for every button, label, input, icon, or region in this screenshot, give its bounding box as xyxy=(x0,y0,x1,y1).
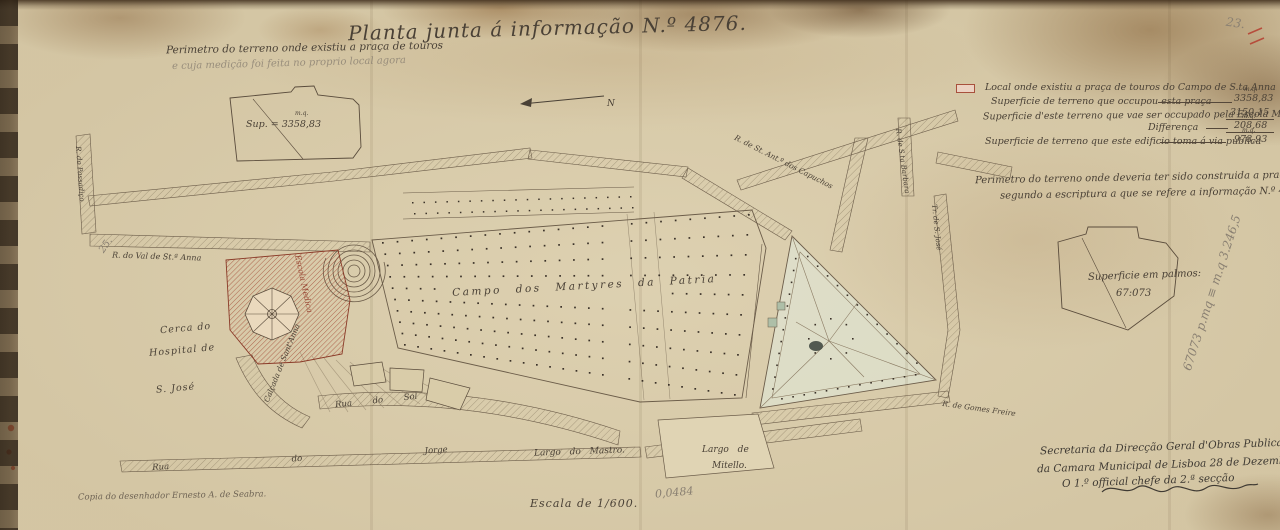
tree-dot xyxy=(733,215,735,217)
tree-dot xyxy=(413,252,415,254)
tree-dot xyxy=(646,222,648,224)
tree-dot xyxy=(446,276,448,278)
tree-dot xyxy=(602,275,604,277)
tree-dot xyxy=(906,353,908,355)
tree-dot xyxy=(416,264,418,266)
tree-dot xyxy=(726,313,728,315)
existing-area-value: Sup. = 3358,83 xyxy=(246,119,321,130)
tree-dot xyxy=(543,230,545,232)
tree-dot xyxy=(483,211,485,213)
tree-dot xyxy=(545,275,547,277)
tree-dot xyxy=(428,251,430,253)
tree-dot xyxy=(471,249,473,251)
tree-dot xyxy=(589,356,591,358)
tree-dot xyxy=(588,323,590,325)
tree-dot xyxy=(544,260,546,262)
tree-dot xyxy=(505,304,507,306)
tree-dot xyxy=(589,372,591,374)
tree-dot xyxy=(410,311,412,313)
tree-dot xyxy=(774,376,776,378)
tree-dot xyxy=(552,209,554,211)
tree-dot xyxy=(546,305,548,307)
tree-dot xyxy=(814,324,816,326)
tree-dot xyxy=(575,354,577,356)
tree-dot xyxy=(468,341,470,343)
tree-dot xyxy=(629,361,631,363)
tree-dot xyxy=(423,202,425,204)
tree-dot xyxy=(530,260,532,262)
tree-dot xyxy=(673,256,675,258)
tree-dot xyxy=(837,285,839,287)
tree-dot xyxy=(562,368,564,370)
tree-dot xyxy=(494,330,496,332)
legend-unit: m.q. xyxy=(1244,86,1257,93)
tree-dot xyxy=(716,255,718,257)
tree-dot xyxy=(710,351,712,353)
tree-dot xyxy=(563,209,565,211)
tree-dot xyxy=(587,259,589,261)
tree-dot xyxy=(430,263,432,265)
tree-dot xyxy=(791,282,793,284)
tree-dot xyxy=(574,307,576,309)
tree-dot xyxy=(632,207,634,209)
tree-dot xyxy=(573,275,575,277)
tree-dot xyxy=(671,311,673,313)
tree-dot xyxy=(642,345,644,347)
tree-dot xyxy=(787,305,789,307)
tree-dot xyxy=(670,329,672,331)
tree-dot xyxy=(548,336,550,338)
campo-field xyxy=(372,210,766,402)
tree-dot xyxy=(399,253,401,255)
tree-dot xyxy=(739,334,741,336)
tree-dot xyxy=(549,351,551,353)
legend-line2-value: 3358,83 xyxy=(1234,93,1273,104)
scale-note: Escala de 1/600. xyxy=(530,497,638,510)
tree-dot xyxy=(596,197,598,199)
tree-dot xyxy=(528,231,530,233)
tree-dot xyxy=(430,348,432,350)
tree-dot xyxy=(560,306,562,308)
tree-dot xyxy=(549,366,551,368)
tree-dot xyxy=(516,261,518,263)
tree-dot xyxy=(506,210,508,212)
tree-dot xyxy=(724,353,726,355)
tree-dot xyxy=(402,333,404,335)
tree-dot xyxy=(694,388,696,390)
tree-dot xyxy=(713,313,715,315)
tree-dot xyxy=(384,253,386,255)
tree-dot xyxy=(587,226,589,228)
tree-dot xyxy=(782,329,784,331)
tree-dot xyxy=(406,288,408,290)
legend-leader xyxy=(1206,128,1228,129)
tree-dot xyxy=(602,357,604,359)
tree-dot xyxy=(479,316,481,318)
tree-dot xyxy=(728,294,730,296)
tree-dot xyxy=(645,239,647,241)
tree-dot xyxy=(515,199,517,201)
existing-area-unit: m.q. xyxy=(295,110,308,117)
tree-dot xyxy=(417,346,419,348)
legend-swatch xyxy=(956,84,975,93)
tree-dot xyxy=(465,315,467,317)
tree-dot xyxy=(826,390,828,392)
tree-dot xyxy=(703,236,705,238)
tree-dot xyxy=(451,314,453,316)
tree-dot xyxy=(602,242,604,244)
tree-dot xyxy=(408,299,410,301)
tree-dot xyxy=(881,380,883,382)
tree-dot xyxy=(521,333,523,335)
tree-dot xyxy=(504,199,506,201)
tree-dot xyxy=(435,201,437,203)
red-corner-ticks xyxy=(1248,28,1264,44)
tree-dot xyxy=(418,276,420,278)
tree-dot xyxy=(655,382,657,384)
tree-dot xyxy=(437,212,439,214)
tree-dot xyxy=(631,240,633,242)
tree-dot xyxy=(473,262,475,264)
tree-dot xyxy=(442,338,444,340)
tree-dot xyxy=(852,338,854,340)
tree-dot xyxy=(414,213,416,215)
tree-dot xyxy=(685,312,687,314)
tree-dot xyxy=(540,210,542,212)
tree-dot xyxy=(413,323,415,325)
tree-dot xyxy=(602,258,604,260)
tree-dot xyxy=(748,214,750,216)
tree-dot xyxy=(392,287,394,289)
tree-dot xyxy=(915,374,917,376)
tree-dot xyxy=(814,352,816,354)
tree-dot xyxy=(492,200,494,202)
tree-dot xyxy=(717,236,719,238)
tree-dot xyxy=(488,275,490,277)
tree-dot xyxy=(656,346,658,348)
tree-dot xyxy=(669,366,671,368)
tree-dot xyxy=(450,301,452,303)
tree-dot xyxy=(631,223,633,225)
tree-dot xyxy=(629,326,631,328)
tree-dot xyxy=(785,317,787,319)
tree-dot xyxy=(397,241,399,243)
tree-dot xyxy=(575,338,577,340)
tree-dot xyxy=(830,318,832,320)
tree-dot xyxy=(572,227,574,229)
legend-leader xyxy=(1158,102,1232,103)
tree-dot xyxy=(789,293,791,295)
tree-dot xyxy=(721,392,723,394)
tree-dot xyxy=(886,333,888,335)
tree-dot xyxy=(711,332,713,334)
tree-dot xyxy=(725,333,727,335)
tree-dot xyxy=(533,305,535,307)
tree-dot xyxy=(529,246,531,248)
label-largo-mitello-1: Largo de xyxy=(702,445,749,455)
tree-dot xyxy=(394,299,396,301)
tree-dot xyxy=(529,210,531,212)
tree-dot xyxy=(731,254,733,256)
tree-dot xyxy=(776,364,778,366)
tree-dot xyxy=(469,200,471,202)
tree-dot xyxy=(575,322,577,324)
tree-dot xyxy=(470,354,472,356)
tree-dot xyxy=(455,236,457,238)
tree-dot xyxy=(434,288,436,290)
tree-dot xyxy=(695,369,697,371)
legend-line4-label: Differença xyxy=(1148,122,1198,133)
tree-dot xyxy=(795,258,797,260)
legend-leader xyxy=(1160,142,1226,143)
tree-dot xyxy=(609,208,611,210)
tree-dot xyxy=(506,318,508,320)
tree-dot xyxy=(482,343,484,345)
tree-dot xyxy=(495,344,497,346)
tree-dot xyxy=(486,248,488,250)
tree-dot xyxy=(382,242,384,244)
tree-dot xyxy=(830,358,832,360)
tree-dot xyxy=(559,260,561,262)
tree-dot xyxy=(399,321,401,323)
tree-dot xyxy=(514,232,516,234)
tree-dot xyxy=(432,276,434,278)
tree-dot xyxy=(487,262,489,264)
tree-dot xyxy=(515,246,517,248)
tree-dot xyxy=(719,216,721,218)
tree-dot xyxy=(621,207,623,209)
tree-dot xyxy=(484,234,486,236)
tree-dot xyxy=(460,276,462,278)
tree-dot xyxy=(441,238,443,240)
tree-dot xyxy=(672,293,674,295)
tree-dot xyxy=(682,367,684,369)
tree-dot xyxy=(481,200,483,202)
tree-dot xyxy=(442,250,444,252)
tree-dot xyxy=(660,239,662,241)
tree-dot xyxy=(411,240,413,242)
tree-dot xyxy=(772,388,774,390)
tree-dot xyxy=(743,274,745,276)
tree-dot xyxy=(517,275,519,277)
tree-dot xyxy=(645,257,647,259)
tree-dot xyxy=(896,343,898,345)
tree-dot xyxy=(746,234,748,236)
tree-dot xyxy=(745,254,747,256)
tree-dot xyxy=(655,364,657,366)
tree-dot xyxy=(401,264,403,266)
corner-pencil-number: 23. xyxy=(1225,15,1246,32)
tree-dot xyxy=(558,244,560,246)
tree-dot xyxy=(576,370,578,372)
tree-dot xyxy=(817,265,819,267)
tree-dot xyxy=(453,327,455,329)
tree-dot xyxy=(535,349,537,351)
tree-dot xyxy=(588,275,590,277)
tree-dot xyxy=(734,394,736,396)
tree-dot xyxy=(630,196,632,198)
tree-dot xyxy=(561,198,563,200)
tree-dot xyxy=(507,332,509,334)
tree-dot xyxy=(660,221,662,223)
tree-dot xyxy=(534,334,536,336)
tree-dot xyxy=(575,209,577,211)
tree-dot xyxy=(602,374,604,376)
tree-dot xyxy=(689,218,691,220)
tree-dot xyxy=(630,275,632,277)
tree-dot xyxy=(470,235,472,237)
tree-dot xyxy=(689,237,691,239)
tree-dot xyxy=(709,371,711,373)
tree-dot xyxy=(420,288,422,290)
tree-dot xyxy=(500,247,502,249)
tree-dot xyxy=(467,328,469,330)
tree-dot xyxy=(584,197,586,199)
tree-dot xyxy=(630,257,632,259)
tree-dot xyxy=(480,329,482,331)
legend-line5-value: 978,93 xyxy=(1234,134,1267,145)
tree-dot xyxy=(457,249,459,251)
tree-dot xyxy=(708,390,710,392)
legend-unit: m.q. xyxy=(1242,127,1255,134)
tree-dot xyxy=(404,344,406,346)
tree-dot xyxy=(492,317,494,319)
tree-dot xyxy=(440,325,442,327)
tree-dot xyxy=(428,336,430,338)
tree-dot xyxy=(460,212,462,214)
plan-sheet: Planta junta á informação N.º 4876. Peri… xyxy=(0,0,1280,530)
tree-dot xyxy=(643,310,645,312)
tree-dot xyxy=(455,339,457,341)
tree-dot xyxy=(573,243,575,245)
tree-dot xyxy=(536,364,538,366)
tree-dot xyxy=(859,384,861,386)
tree-dot xyxy=(837,388,839,390)
tree-dot xyxy=(496,358,498,360)
tree-dot xyxy=(722,372,724,374)
tree-dot xyxy=(503,275,505,277)
tree-dot xyxy=(643,327,645,329)
tree-dot xyxy=(827,275,829,277)
tree-dot xyxy=(602,324,604,326)
tree-dot xyxy=(742,294,744,296)
legend-unit: m.q. xyxy=(1242,113,1255,120)
tree-dot xyxy=(729,274,731,276)
tree-dot xyxy=(474,276,476,278)
tree-dot xyxy=(714,293,716,295)
tree-dot xyxy=(602,225,604,227)
tree-dot xyxy=(544,245,546,247)
tree-dot xyxy=(740,314,742,316)
garden-pond xyxy=(809,341,823,351)
tree-dot xyxy=(436,301,438,303)
tree-dot xyxy=(848,386,850,388)
planned-area-value: 67:073 xyxy=(1116,288,1151,299)
tree-dot xyxy=(904,376,906,378)
tree-dot xyxy=(607,197,609,199)
north-letter: N xyxy=(607,99,615,109)
tree-dot xyxy=(815,392,817,394)
tree-dot xyxy=(681,386,683,388)
tree-dot xyxy=(657,310,659,312)
tree-dot xyxy=(602,341,604,343)
tree-dot xyxy=(698,331,700,333)
tree-dot xyxy=(561,322,563,324)
tree-dot xyxy=(657,328,659,330)
tree-dot xyxy=(675,220,677,222)
tree-dot xyxy=(668,384,670,386)
tree-dot xyxy=(792,396,794,398)
tree-dot xyxy=(697,350,699,352)
tree-dot xyxy=(562,353,564,355)
tree-dot xyxy=(519,304,521,306)
upper-alley xyxy=(403,187,634,219)
tree-dot xyxy=(736,374,738,376)
tree-dot xyxy=(573,259,575,261)
tree-dot xyxy=(642,380,644,382)
tree-dot xyxy=(916,362,918,364)
tree-dot xyxy=(458,201,460,203)
tree-dot xyxy=(674,238,676,240)
tree-dot xyxy=(778,353,780,355)
tree-dot xyxy=(781,398,783,400)
tree-dot xyxy=(520,319,522,321)
tree-dot xyxy=(561,337,563,339)
tree-dot xyxy=(438,313,440,315)
tree-dot xyxy=(670,347,672,349)
tree-dot xyxy=(700,293,702,295)
tree-dot xyxy=(426,324,428,326)
tree-dot xyxy=(732,235,734,237)
tree-dot xyxy=(702,255,704,257)
tree-dot xyxy=(463,302,465,304)
tree-dot xyxy=(517,210,519,212)
tree-dot xyxy=(683,349,685,351)
tree-dot xyxy=(588,307,590,309)
tree-dot xyxy=(686,293,688,295)
tree-dot xyxy=(704,217,706,219)
tree-dot xyxy=(893,378,895,380)
tree-dot xyxy=(458,263,460,265)
tree-dot xyxy=(508,346,510,348)
tree-dot xyxy=(550,198,552,200)
tree-dot xyxy=(477,302,479,304)
tree-dot xyxy=(847,294,849,296)
tree-dot xyxy=(558,229,560,231)
tree-dot xyxy=(846,352,848,354)
tree-dot xyxy=(602,308,604,310)
tree-dot xyxy=(684,330,686,332)
triangle-garden xyxy=(760,236,936,408)
tree-dot xyxy=(857,304,859,306)
tree-dot xyxy=(415,334,417,336)
tree-dot xyxy=(780,341,782,343)
tree-dot xyxy=(642,362,644,364)
tree-dot xyxy=(448,212,450,214)
tree-dot xyxy=(491,303,493,305)
tree-dot xyxy=(588,340,590,342)
tree-dot xyxy=(630,309,632,311)
tree-dot xyxy=(628,378,630,380)
tree-dot xyxy=(425,213,427,215)
tree-dot xyxy=(586,208,588,210)
tree-dot xyxy=(501,261,503,263)
tree-dot xyxy=(523,362,525,364)
tree-dot xyxy=(870,382,872,384)
tree-dot xyxy=(397,310,399,312)
tree-dot xyxy=(559,275,561,277)
tree-dot xyxy=(483,356,485,358)
